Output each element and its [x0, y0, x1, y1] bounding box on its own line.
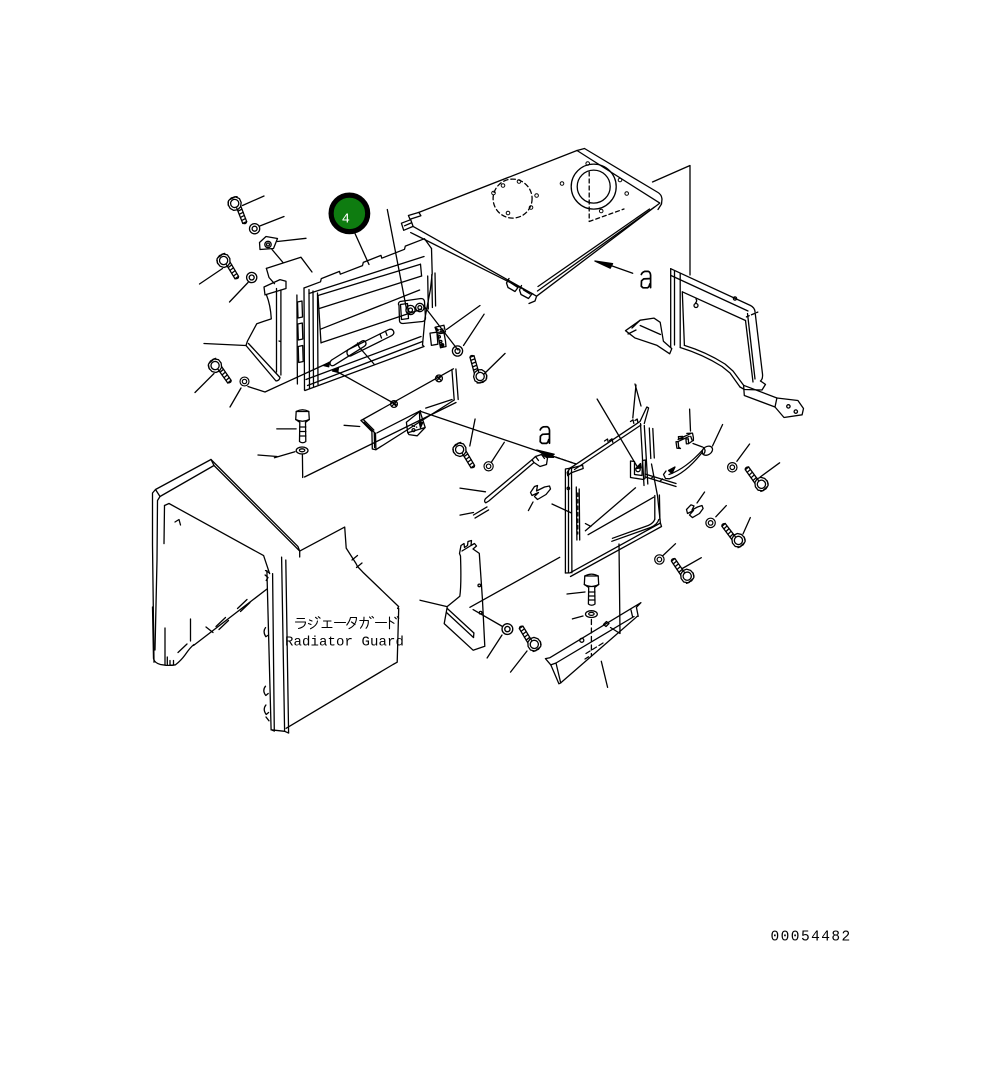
svg-text:00054482: 00054482 — [771, 930, 852, 946]
svg-text:4: 4 — [342, 213, 350, 228]
svg-text:Radiator Guard: Radiator Guard — [285, 635, 404, 651]
